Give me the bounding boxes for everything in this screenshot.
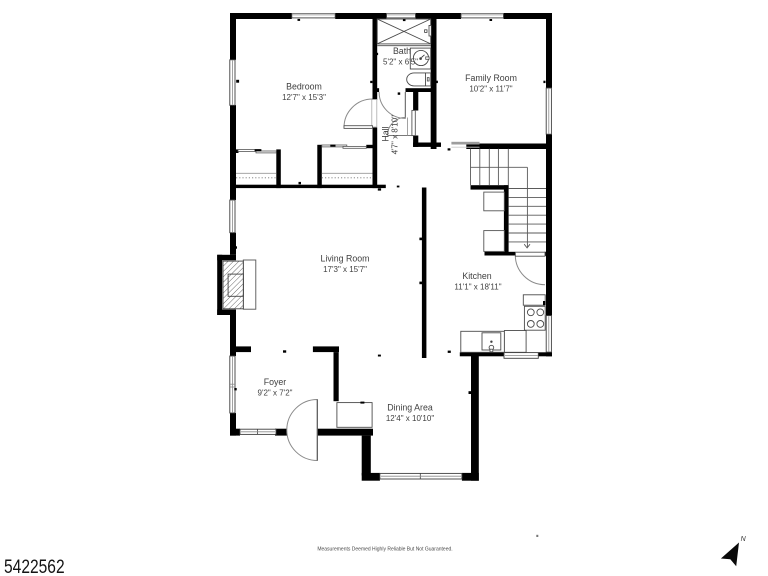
svg-text:Foyer: Foyer — [264, 377, 287, 387]
svg-text:9'2" x 7'2": 9'2" x 7'2" — [258, 389, 293, 398]
svg-text:4'7" x 8'10": 4'7" x 8'10" — [391, 115, 400, 155]
svg-text:Hall: Hall — [381, 126, 391, 141]
svg-text:Kitchen: Kitchen — [462, 271, 491, 281]
svg-text:Dining Area: Dining Area — [387, 403, 433, 413]
svg-text:Living Room: Living Room — [321, 254, 370, 264]
svg-text:Measurements Deemed Highly Rel: Measurements Deemed Highly Reliable But … — [317, 546, 452, 552]
svg-text:10'2" x 11'7": 10'2" x 11'7" — [469, 85, 512, 94]
svg-text:11'1" x 18'11": 11'1" x 18'11" — [454, 283, 501, 292]
svg-text:17'3" x 15'7": 17'3" x 15'7" — [323, 265, 367, 274]
svg-text:5422562: 5422562 — [4, 555, 65, 576]
svg-text:12'7" x 15'3": 12'7" x 15'3" — [282, 93, 326, 102]
svg-text:Family Room: Family Room — [465, 73, 517, 83]
svg-text:5'2" x 6'5": 5'2" x 6'5" — [383, 58, 418, 67]
svg-text:Bath: Bath — [393, 46, 411, 56]
svg-text:12'4" x 10'10": 12'4" x 10'10" — [386, 414, 434, 423]
svg-text:Bedroom: Bedroom — [286, 82, 322, 92]
